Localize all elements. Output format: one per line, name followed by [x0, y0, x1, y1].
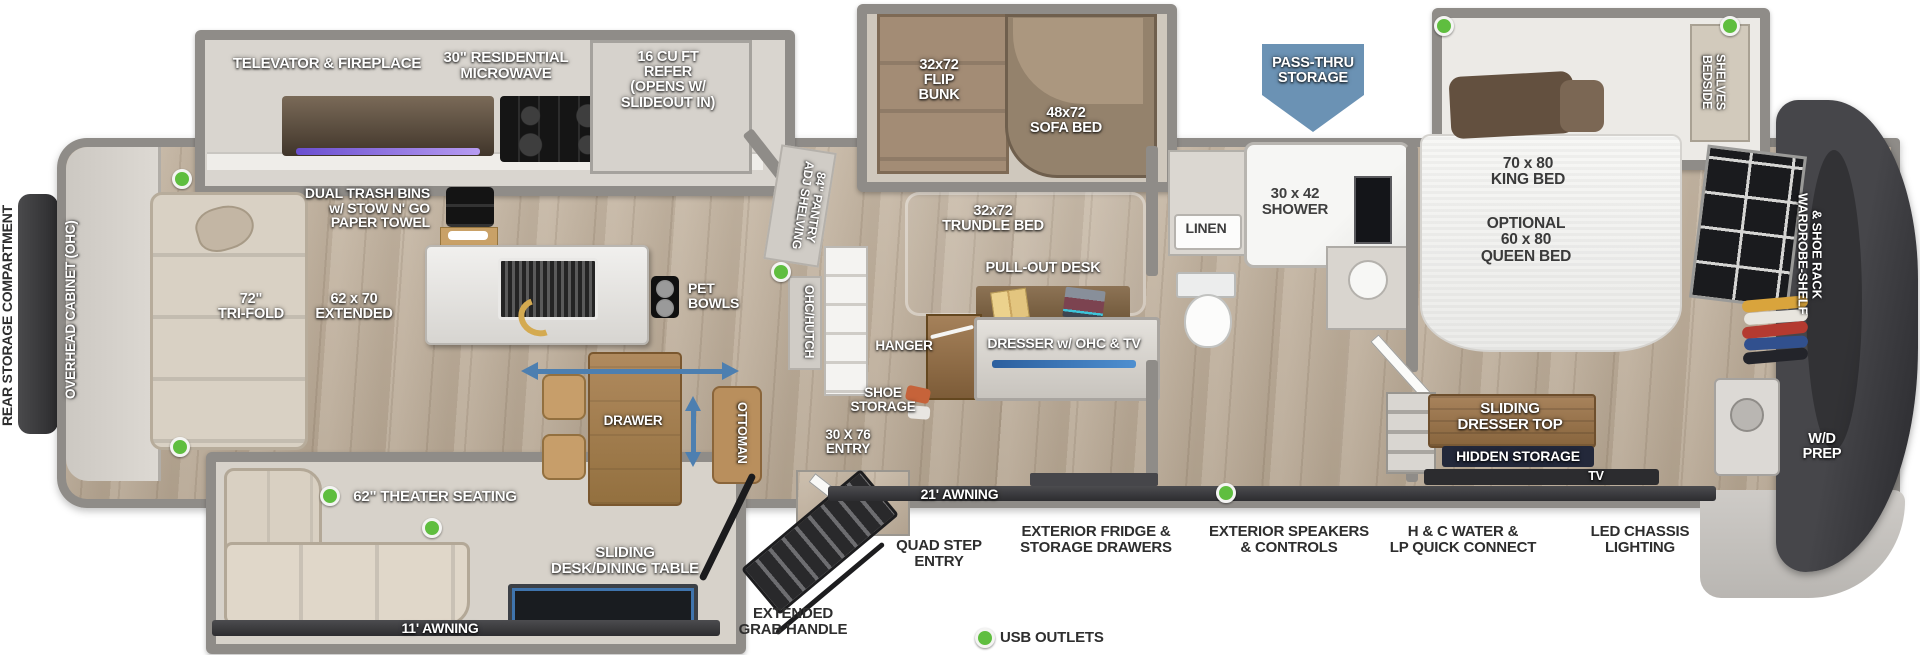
label-hutch: OHC/HUTCH	[791, 280, 815, 364]
arrow-head-left	[512, 362, 538, 380]
label-refer: 16 CU FT REFER (OPENS W/ SLIDEOUT IN)	[598, 50, 738, 111]
label-microwave: 30" RESIDENTIAL MICROWAVE	[430, 50, 582, 82]
dining-chair	[542, 434, 586, 480]
bed-pillow-icon	[1448, 71, 1575, 139]
label-ottoman: OTTOMAN	[722, 390, 748, 476]
label-pullout-desk: PULL-OUT DESK	[973, 261, 1113, 276]
tv-strip-icon	[1424, 469, 1659, 485]
arrow-head-right	[722, 362, 748, 380]
label-usb-legend: USB OUTLETS	[1000, 630, 1130, 646]
label-linen: LINEN	[1174, 221, 1238, 236]
toilet-icon	[1184, 294, 1232, 348]
dresser-tv-icon	[992, 360, 1136, 368]
label-trash: DUAL TRASH BINS w/ STOW N' GO PAPER TOWE…	[288, 186, 430, 230]
label-grab-handle: EXTENDED GRAB HANDLE	[733, 606, 853, 638]
label-trundle: 32x72 TRUNDLE BED	[938, 204, 1048, 234]
usb-outlet-dot	[1434, 16, 1454, 36]
label-tri-fold: 72" TRI-FOLD	[212, 292, 290, 322]
usb-outlet-dot	[422, 518, 442, 538]
label-ext-speakers: EXTERIOR SPEAKERS & CONTROLS	[1208, 524, 1370, 556]
label-shoe-storage: SHOE STORAGE	[850, 386, 916, 414]
label-wd-prep: W/D PREP	[1786, 432, 1858, 462]
label-drawer: DRAWER	[596, 414, 670, 428]
label-sliding-desk: SLIDING DESK/DINING TABLE	[525, 545, 725, 577]
bed-pillow-icon	[1560, 80, 1604, 132]
label-pet-bowls: PET BOWLS	[688, 281, 746, 310]
pet-bowl-top	[656, 280, 674, 298]
label-hidden-storage: HIDDEN STORAGE	[1442, 449, 1594, 464]
slide-arrow-horizontal	[528, 369, 724, 374]
usb-outlet-dot	[1216, 483, 1236, 503]
arrow-head-up	[685, 388, 701, 411]
label-awning-11: 11' AWNING	[375, 621, 505, 636]
usb-legend-dot	[975, 628, 995, 648]
label-flip-bunk: 32x72 FLIP BUNK	[896, 58, 982, 104]
label-queen-option: OPTIONAL 60 x 80 QUEEN BED	[1470, 216, 1582, 265]
fireplace-glow-icon	[296, 148, 480, 155]
usb-outlet-dot	[771, 262, 791, 282]
usb-outlet-dot	[172, 169, 192, 189]
dresser	[974, 317, 1160, 401]
paper-towel-roll	[448, 231, 488, 240]
label-pass-thru: PASS-THRU STORAGE	[1262, 56, 1364, 86]
usb-outlet-dot	[170, 437, 190, 457]
label-king-bed: 70 x 80 KING BED	[1478, 156, 1578, 189]
label-theater: 62" THEATER SEATING	[340, 489, 530, 505]
washer-door-icon	[1730, 398, 1764, 432]
theater-sofa-front	[224, 542, 470, 626]
label-awning-21: 21' AWNING	[902, 487, 1017, 501]
label-shower: 30 x 42 SHOWER	[1252, 186, 1338, 218]
televator-fireplace-unit	[282, 96, 494, 156]
label-hanger: HANGER	[866, 339, 942, 353]
label-quad-step: QUAD STEP ENTRY	[880, 538, 998, 570]
vanity-sink-icon	[1348, 260, 1388, 300]
label-sofa-bed: 48x72 SOFA BED	[1018, 106, 1114, 136]
bedroom-window	[1689, 144, 1807, 309]
usb-outlet-dot	[320, 486, 340, 506]
pet-bowl-bottom	[656, 299, 674, 317]
label-dresser: DRESSER w/ OHC & TV	[980, 336, 1148, 351]
label-led-lighting: LED CHASSIS LIGHTING	[1580, 524, 1700, 556]
rear-bumper	[18, 194, 58, 434]
label-ext-fridge: EXTERIOR FRIDGE & STORAGE DRAWERS	[1012, 524, 1180, 556]
hutch-cabinet	[824, 246, 868, 396]
label-entry: 30 X 76 ENTRY	[808, 428, 888, 456]
bath-wall-right-upper	[1406, 146, 1418, 372]
arrow-head-down	[685, 452, 701, 475]
label-rear-storage: REAR STORAGE COMPARTMENT	[0, 198, 22, 432]
rv-floorplan: REAR STORAGE COMPARTMENT OVERHEAD CABINE…	[0, 0, 1920, 655]
label-overhead-cabinet: OVERHEAD CABINET (OHC)	[64, 214, 94, 406]
label-sliding-dresser: SLIDING DRESSER TOP	[1432, 401, 1588, 433]
label-bedside-shelves: BEDSIDE SHELVES	[1700, 30, 1738, 134]
dining-chair	[542, 374, 586, 420]
label-televator: TELEVATOR & FIREPLACE	[232, 56, 422, 72]
trash-bins-icon	[446, 187, 494, 227]
label-hc-water: H & C WATER & LP QUICK CONNECT	[1382, 524, 1544, 556]
label-tv: TV	[1576, 470, 1616, 483]
label-extended: 62 x 70 EXTENDED	[312, 292, 396, 322]
shower-tv-icon	[1354, 176, 1392, 244]
exterior-fridge-inset	[1030, 473, 1158, 486]
bath-wall-left-lower	[1146, 360, 1158, 482]
label-wardrobe: WARDROBE-SHELF & SHOE RACK	[1796, 168, 1844, 340]
bath-wall-left-upper	[1146, 146, 1158, 276]
sliding-dining-table	[588, 352, 682, 506]
